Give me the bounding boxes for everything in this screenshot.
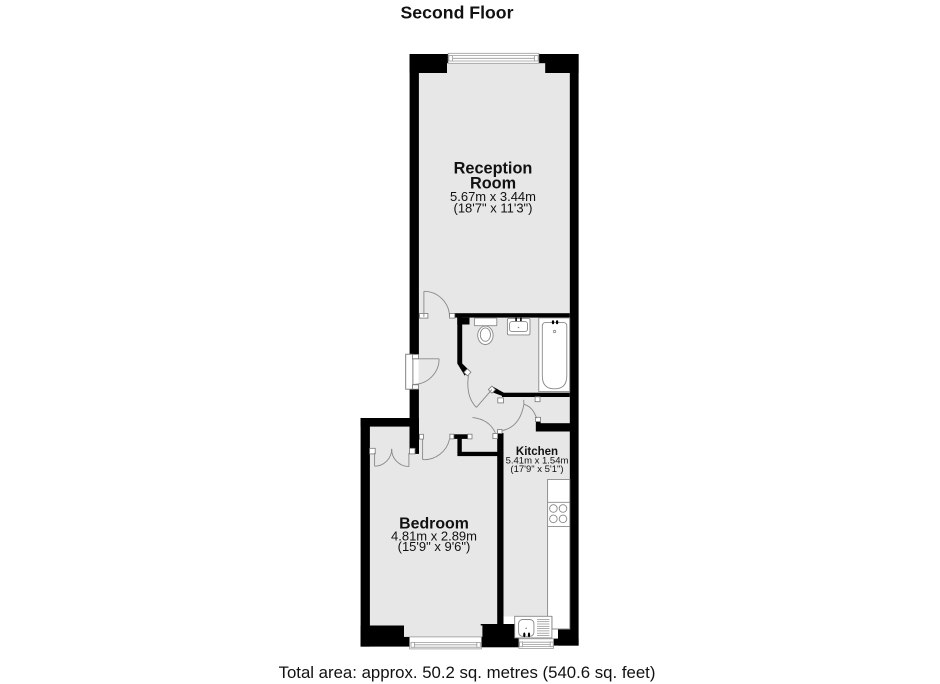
svg-text:(15'9" x 9'6"): (15'9" x 9'6")	[398, 539, 471, 554]
svg-text:(17'9" x 5'1"): (17'9" x 5'1")	[510, 464, 563, 475]
svg-text:(18'7" x 11'3"): (18'7" x 11'3")	[454, 201, 533, 216]
svg-text:Total area: approx. 50.2 sq. m: Total area: approx. 50.2 sq. metres (540…	[279, 663, 656, 682]
svg-text:Second Floor: Second Floor	[400, 3, 513, 23]
